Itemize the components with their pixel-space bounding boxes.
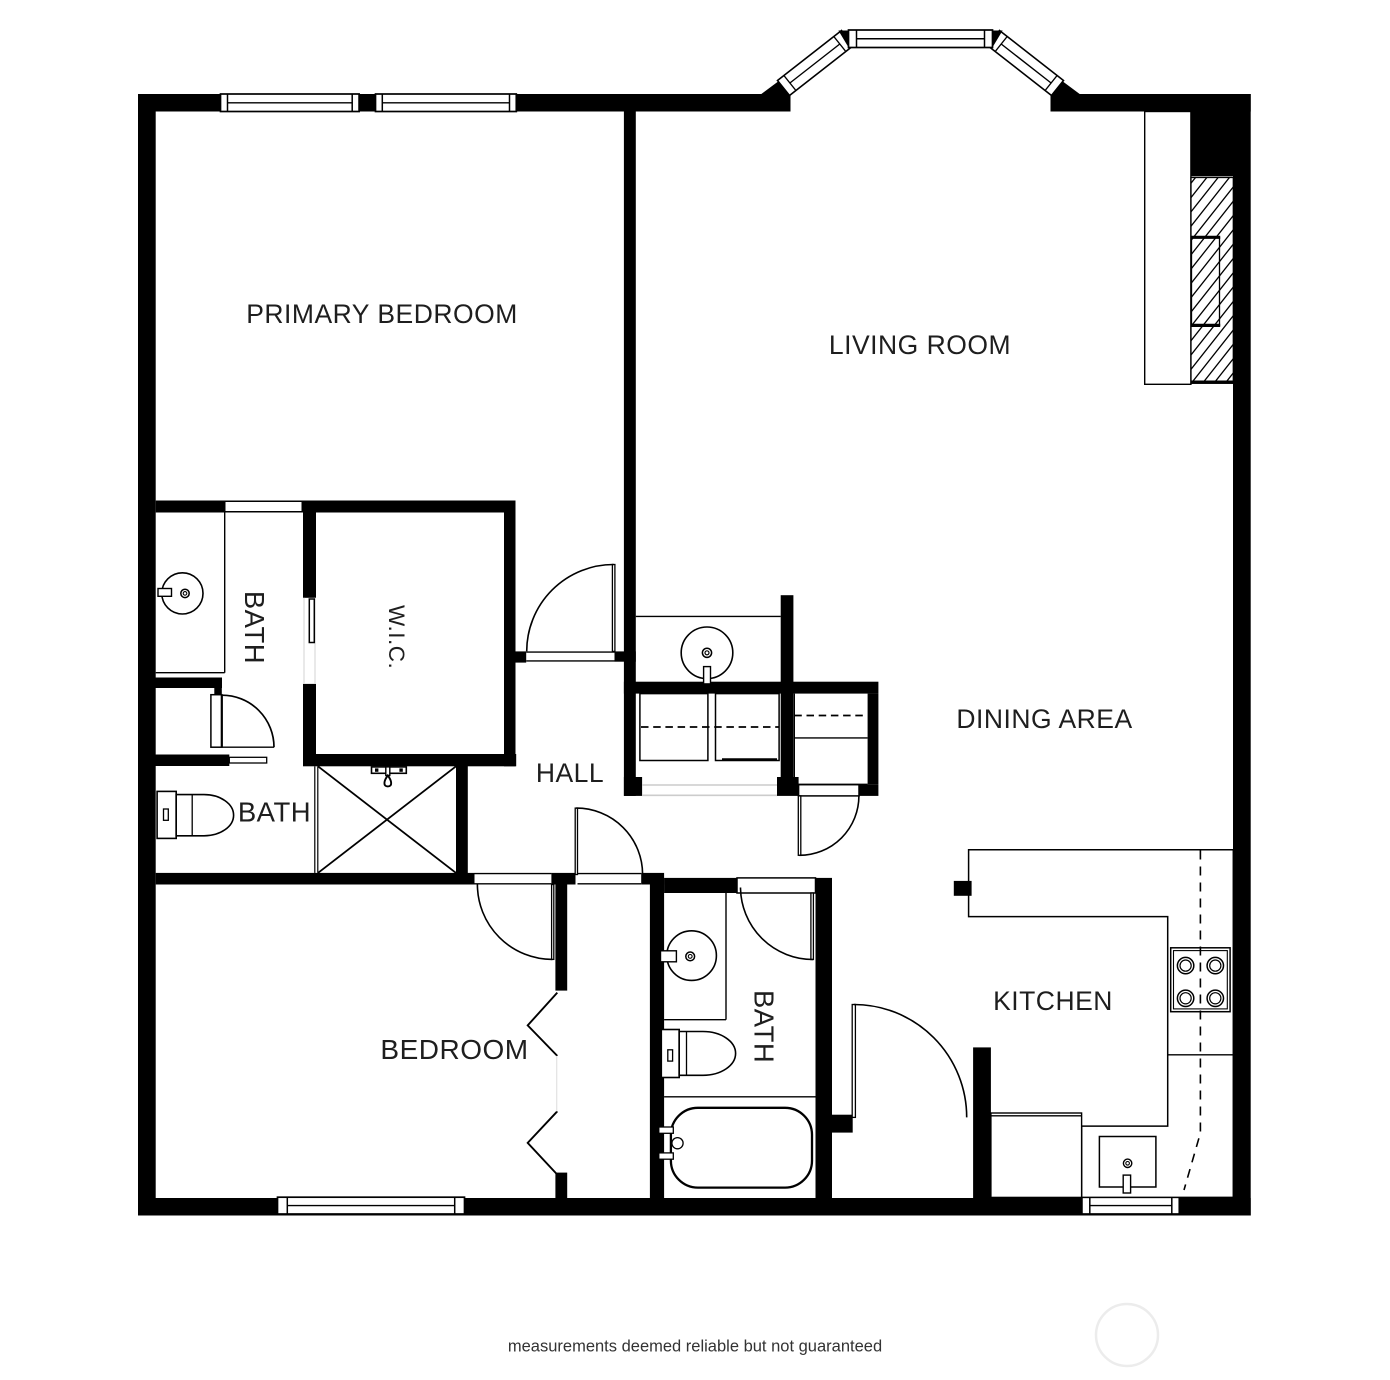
svg-text:BATH: BATH	[238, 797, 311, 828]
svg-text:BEDROOM: BEDROOM	[380, 1034, 528, 1065]
svg-text:DINING AREA: DINING AREA	[956, 704, 1132, 734]
svg-text:HALL: HALL	[536, 758, 604, 788]
svg-text:BATH: BATH	[749, 990, 780, 1063]
svg-text:measurements deemed reliable b: measurements deemed reliable but not gua…	[508, 1338, 882, 1356]
svg-text:LIVING ROOM: LIVING ROOM	[829, 330, 1011, 360]
svg-text:W.I.C.: W.I.C.	[384, 605, 409, 669]
svg-text:KITCHEN: KITCHEN	[993, 986, 1113, 1016]
svg-text:PRIMARY BEDROOM: PRIMARY BEDROOM	[246, 299, 518, 329]
svg-text:BATH: BATH	[239, 591, 270, 664]
